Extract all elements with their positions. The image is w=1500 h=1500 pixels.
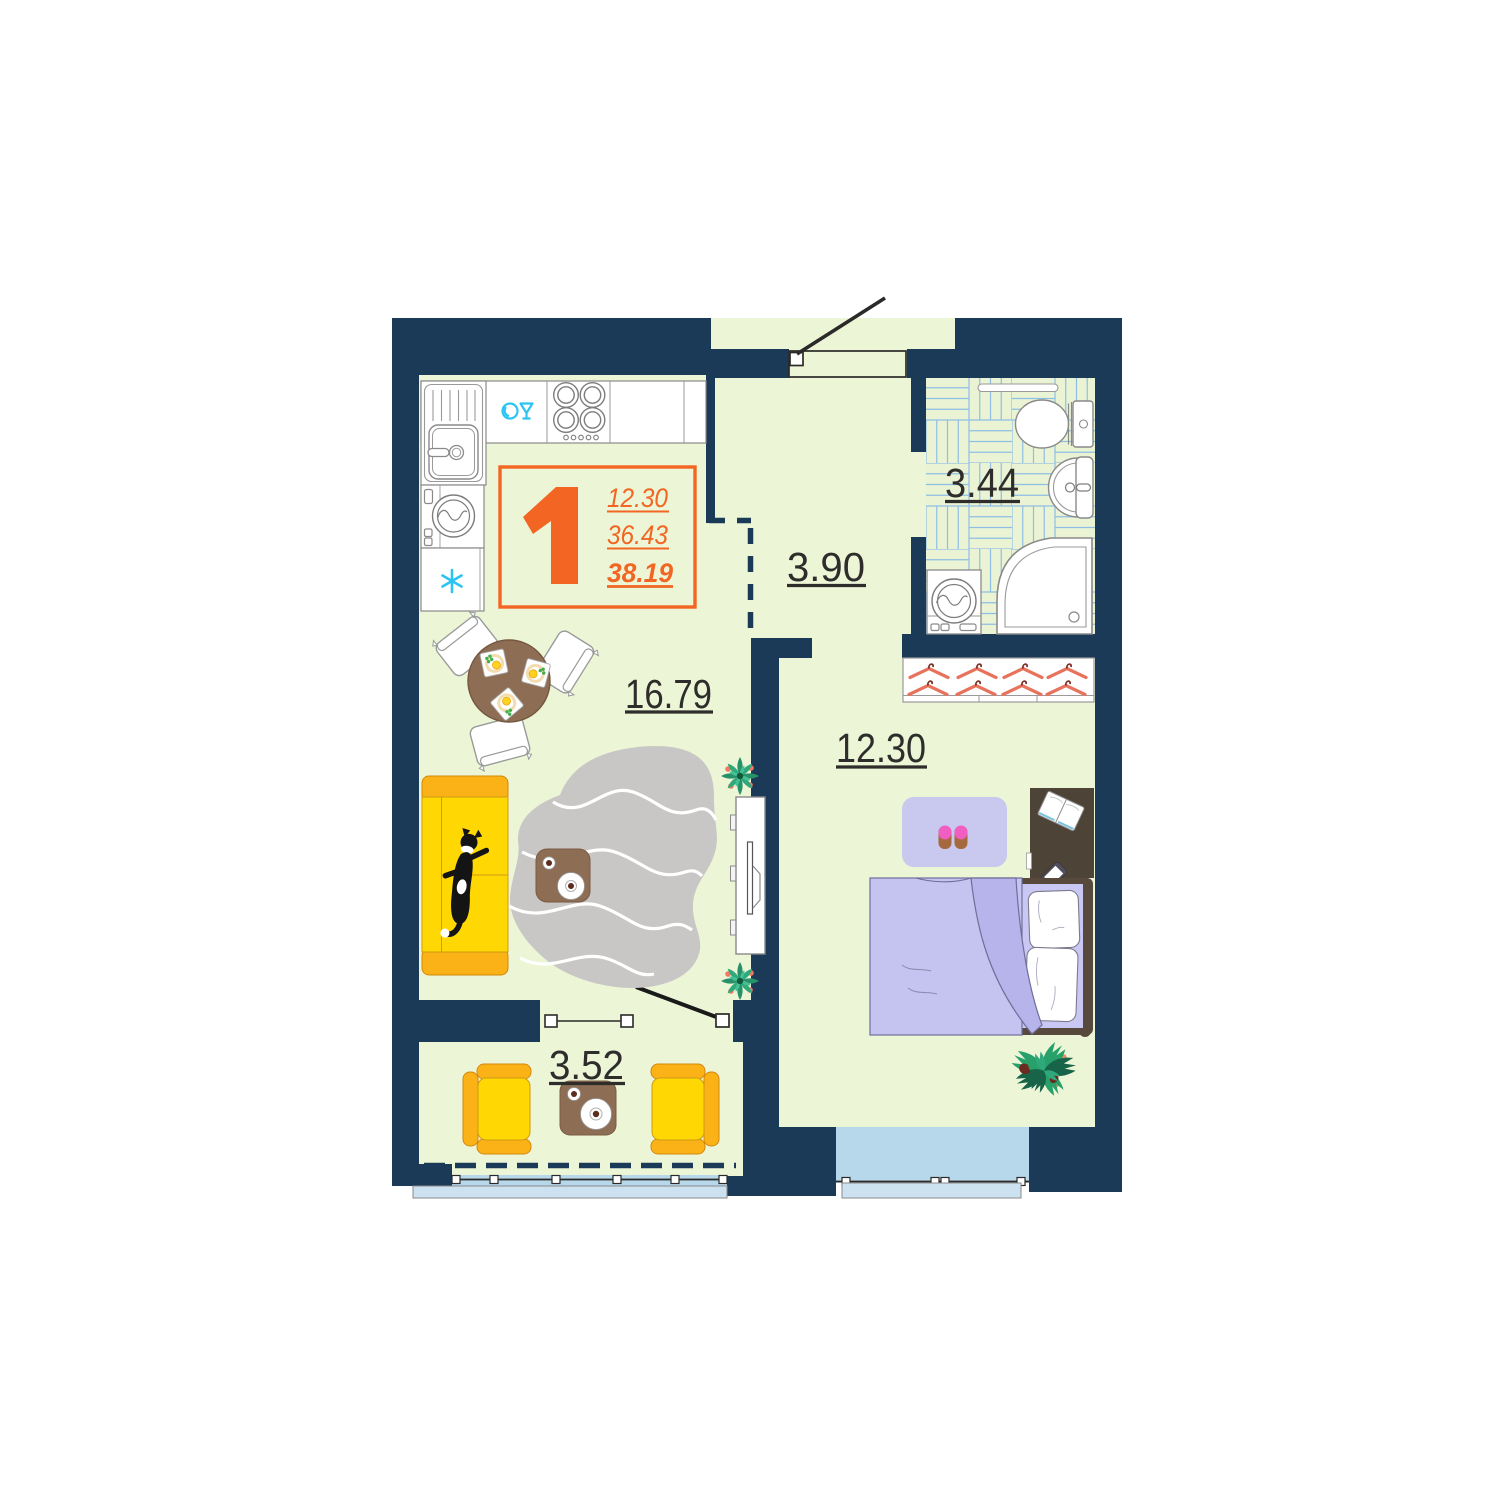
svg-text:38.19: 38.19	[607, 558, 673, 588]
svg-text:3.44: 3.44	[945, 460, 1019, 506]
svg-text:12.30: 12.30	[836, 725, 926, 771]
svg-text:36.43: 36.43	[607, 520, 668, 550]
svg-text:3.52: 3.52	[549, 1042, 624, 1088]
svg-text:12.30: 12.30	[607, 483, 668, 513]
svg-text:3.90: 3.90	[787, 544, 865, 590]
svg-text:16.79: 16.79	[625, 671, 712, 717]
